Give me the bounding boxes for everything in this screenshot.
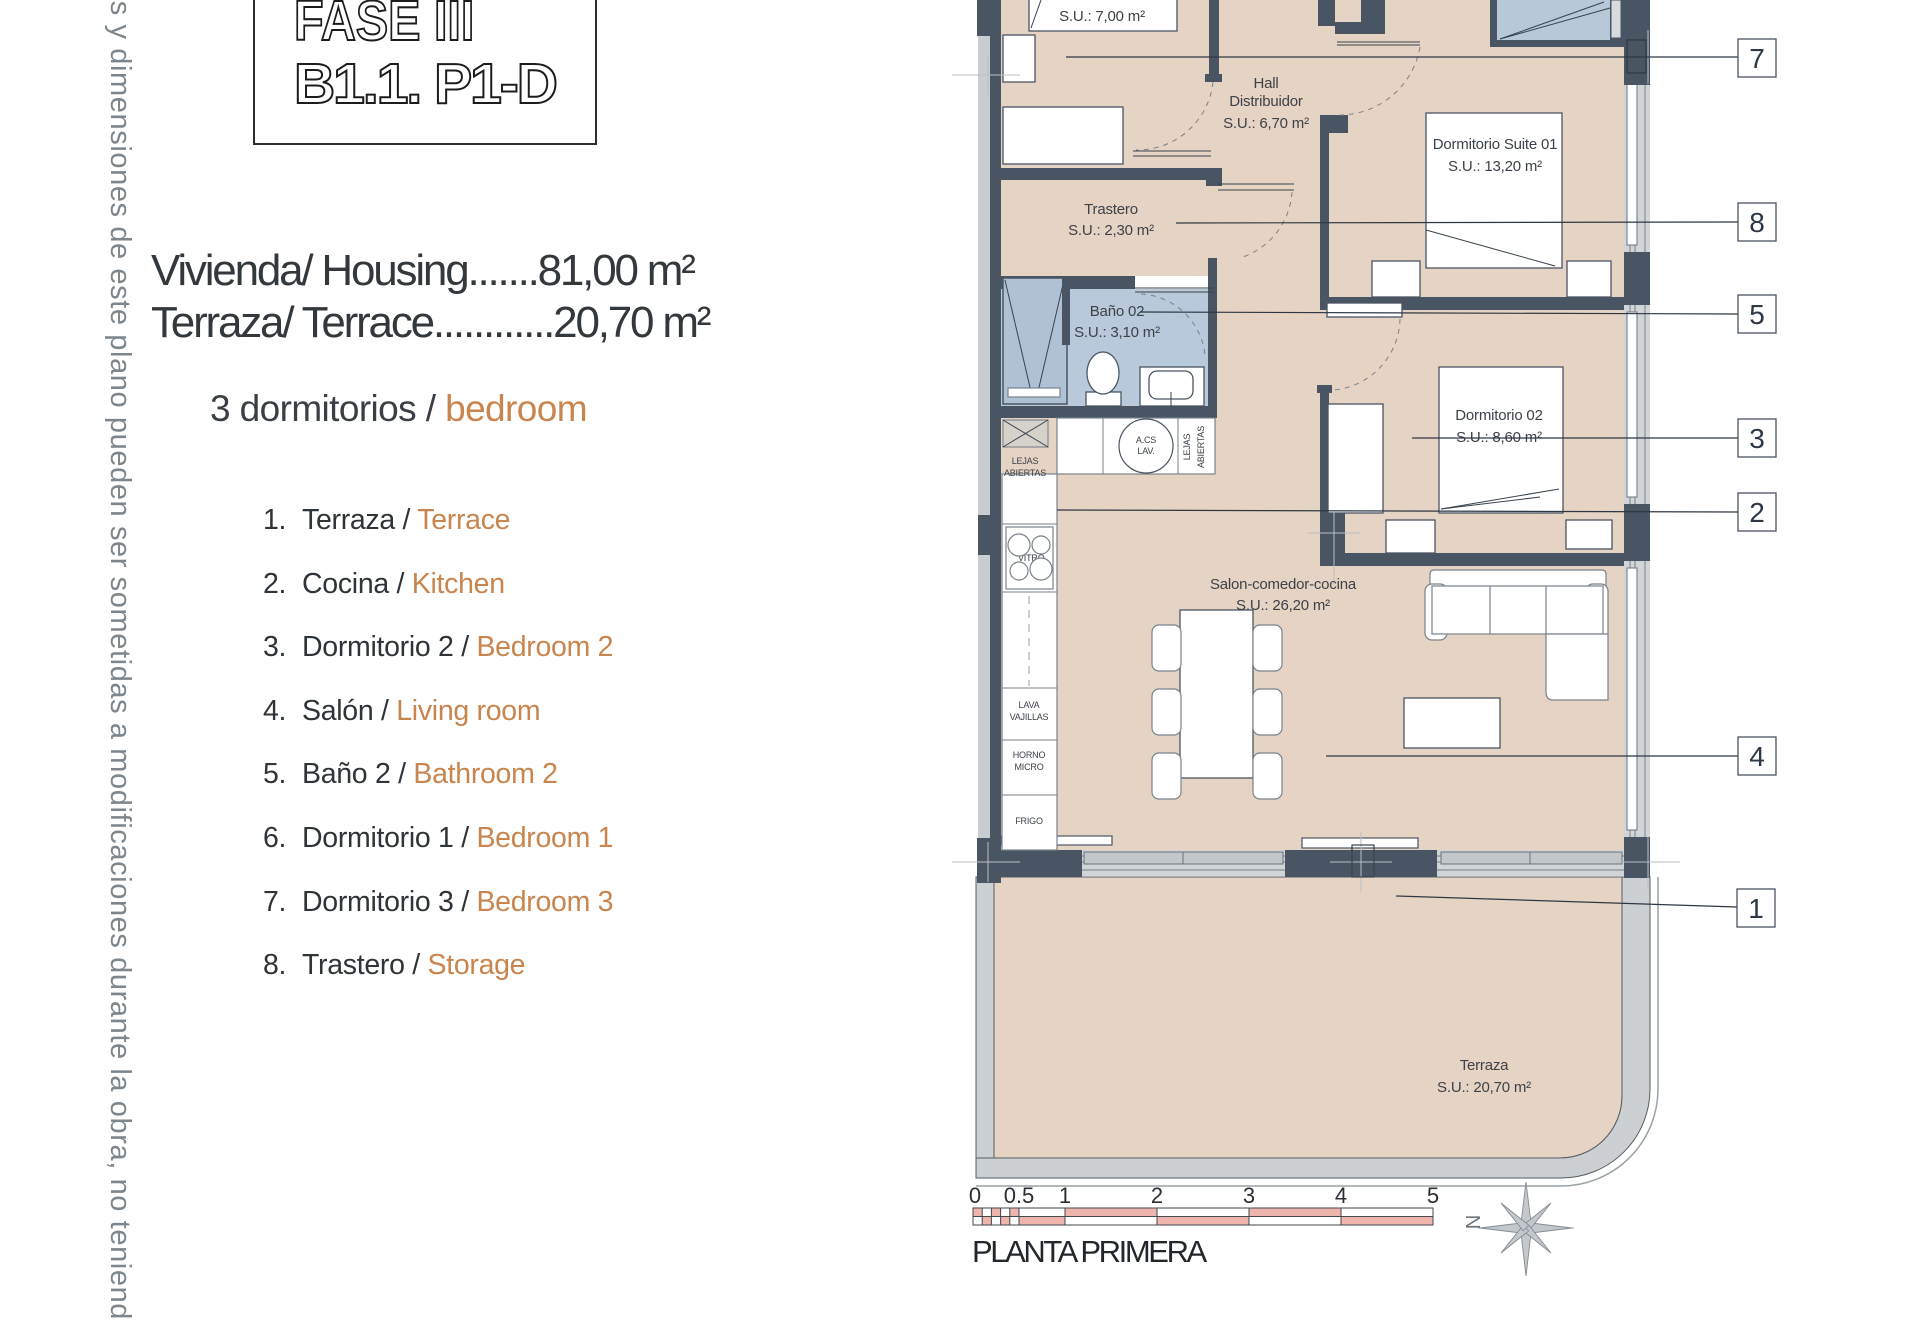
svg-text:S.U.: 20,70 m²: S.U.: 20,70 m² <box>1437 1079 1531 1096</box>
svg-text:4: 4 <box>1749 741 1765 772</box>
svg-text:ABIERTAS: ABIERTAS <box>1004 468 1046 478</box>
svg-text:Baño 02: Baño 02 <box>1090 303 1144 320</box>
svg-text:7: 7 <box>1749 43 1765 74</box>
svg-text:LAV.: LAV. <box>1137 446 1154 456</box>
svg-text:S.U.: 2,30 m²: S.U.: 2,30 m² <box>1068 222 1154 239</box>
svg-text:S.U.: 26,20 m²: S.U.: 26,20 m² <box>1236 597 1330 614</box>
svg-text:1: 1 <box>1748 893 1764 924</box>
svg-text:S.U.: 6,70 m²: S.U.: 6,70 m² <box>1223 115 1309 132</box>
svg-text:Salon-comedor-cocina: Salon-comedor-cocina <box>1210 576 1357 593</box>
svg-text:MICRO: MICRO <box>1015 762 1044 772</box>
svg-text:VAJILLAS: VAJILLAS <box>1010 712 1049 722</box>
svg-text:3: 3 <box>1243 1183 1255 1208</box>
svg-text:S.U.: 7,00 m²: S.U.: 7,00 m² <box>1059 8 1145 25</box>
svg-text:0: 0 <box>969 1183 981 1208</box>
svg-text:Trastero: Trastero <box>1084 201 1138 218</box>
svg-text:Dormitorio Suite 01: Dormitorio Suite 01 <box>1433 136 1558 153</box>
svg-text:A.CS: A.CS <box>1136 435 1156 445</box>
svg-text:1: 1 <box>1059 1183 1071 1208</box>
svg-text:PLANTA PRIMERA: PLANTA PRIMERA <box>972 1234 1208 1269</box>
svg-text:2: 2 <box>1151 1183 1163 1208</box>
svg-text:4: 4 <box>1335 1183 1347 1208</box>
svg-text:5: 5 <box>1749 299 1765 330</box>
svg-text:Dormitorio 02: Dormitorio 02 <box>1455 407 1542 424</box>
svg-text:LEJAS: LEJAS <box>1182 434 1192 461</box>
svg-text:ABIERTAS: ABIERTAS <box>1196 426 1206 468</box>
svg-text:0.5: 0.5 <box>1004 1183 1035 1208</box>
svg-text:5: 5 <box>1427 1183 1439 1208</box>
svg-text:LAVA: LAVA <box>1019 700 1040 710</box>
svg-text:FRIGO: FRIGO <box>1015 816 1043 826</box>
svg-text:S.U.: 3,10 m²: S.U.: 3,10 m² <box>1074 324 1160 341</box>
svg-text:3: 3 <box>1749 423 1765 454</box>
svg-text:Hall: Hall <box>1253 75 1278 92</box>
svg-text:Terraza: Terraza <box>1460 1057 1509 1074</box>
svg-text:Distribuidor: Distribuidor <box>1229 93 1303 110</box>
svg-text:S.U.: 13,20 m²: S.U.: 13,20 m² <box>1448 158 1542 175</box>
svg-text:2: 2 <box>1749 497 1765 528</box>
svg-text:8: 8 <box>1749 207 1765 238</box>
svg-text:HORNO: HORNO <box>1013 750 1046 760</box>
svg-text:N: N <box>1461 1215 1483 1229</box>
svg-text:LEJAS: LEJAS <box>1012 456 1039 466</box>
